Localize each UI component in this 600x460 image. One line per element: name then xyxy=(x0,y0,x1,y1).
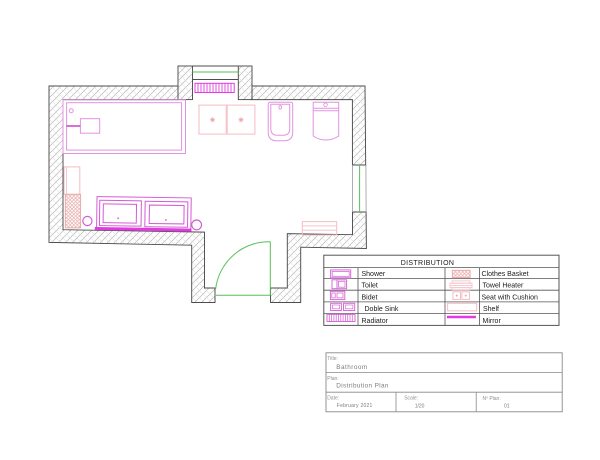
svg-text:Bidet: Bidet xyxy=(362,294,378,301)
svg-text:Nº Plan:: Nº Plan: xyxy=(483,396,501,402)
svg-text:Distribution Plan: Distribution Plan xyxy=(336,383,389,390)
svg-text:Plan:: Plan: xyxy=(327,376,338,382)
svg-text:Doble Sink: Doble Sink xyxy=(365,306,399,313)
svg-text:Toilet: Toilet xyxy=(362,283,378,290)
svg-text:Towel Heater: Towel Heater xyxy=(483,283,525,290)
svg-text:Shelf: Shelf xyxy=(483,306,499,313)
svg-text:Title:: Title: xyxy=(327,356,338,362)
svg-text:Clothes Basket: Clothes Basket xyxy=(482,271,529,278)
svg-text:Mirror: Mirror xyxy=(483,318,502,325)
svg-text:Shower: Shower xyxy=(362,271,386,278)
svg-text:Date:: Date: xyxy=(327,396,339,402)
svg-text:Scale:: Scale: xyxy=(404,396,418,402)
svg-text:DISTRIBUTION: DISTRIBUTION xyxy=(401,260,455,267)
svg-text:February 2021: February 2021 xyxy=(337,403,373,409)
svg-text:Seat with Cushion: Seat with Cushion xyxy=(482,294,539,301)
svg-text:Radiator: Radiator xyxy=(362,318,389,325)
svg-text:Bathroom: Bathroom xyxy=(336,364,367,371)
svg-text:1/20: 1/20 xyxy=(415,404,425,410)
svg-text:01: 01 xyxy=(504,404,510,410)
